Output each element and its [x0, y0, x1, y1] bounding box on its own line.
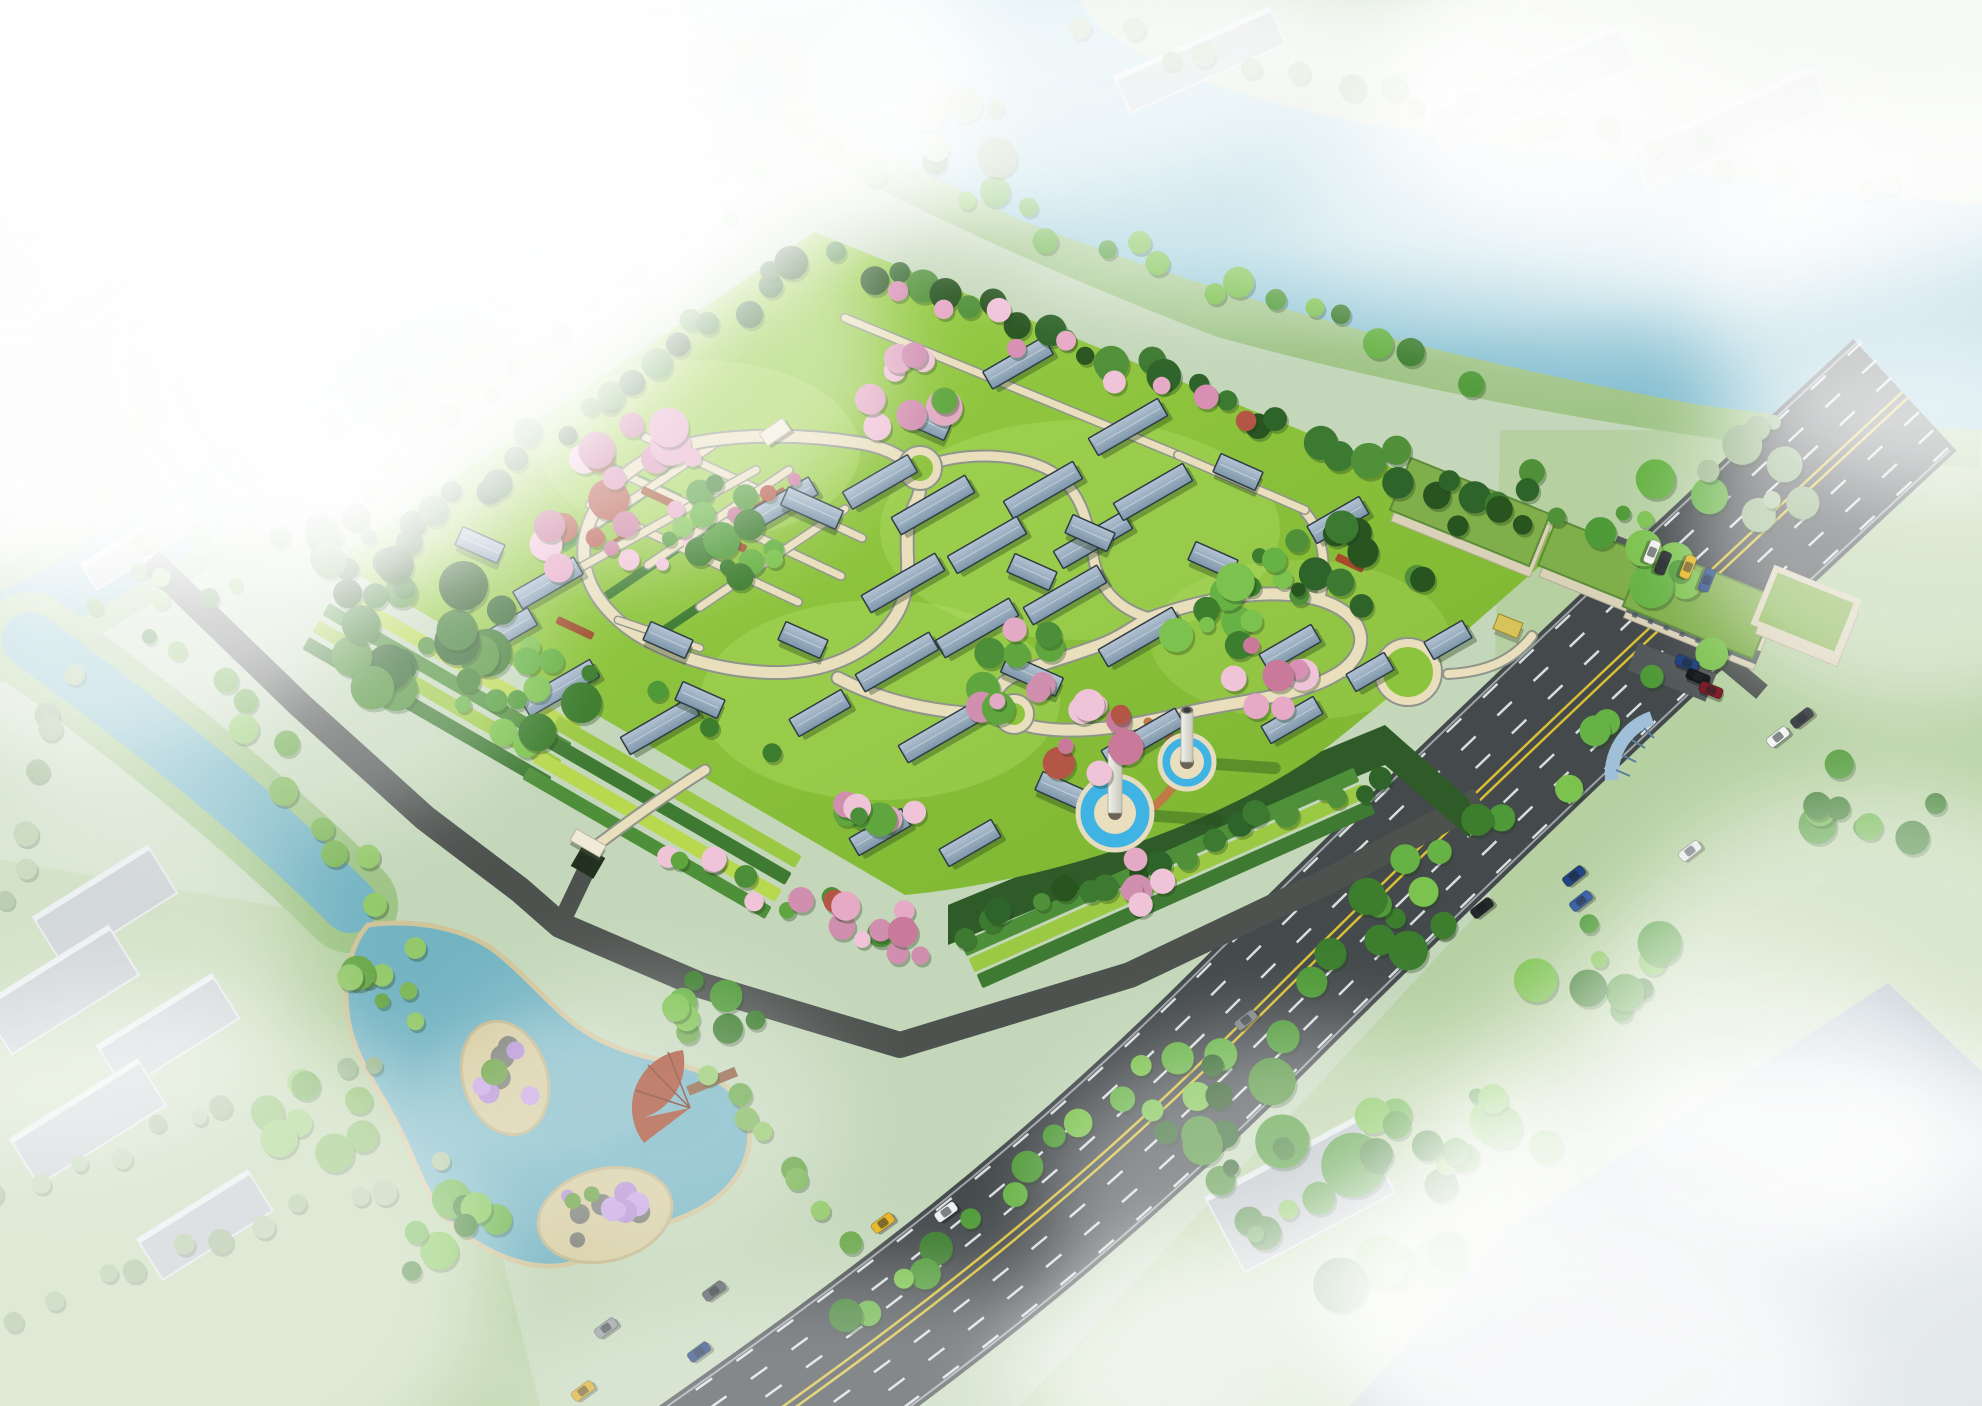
- tree-crown: [1825, 750, 1854, 779]
- tree-crown: [1285, 529, 1308, 552]
- tree-crown: [1153, 377, 1171, 395]
- tree-crown: [1350, 594, 1374, 618]
- tree-crown: [1516, 478, 1539, 501]
- fog-patch: [1280, 20, 1880, 340]
- tree-crown: [811, 1201, 831, 1221]
- tree-crown: [1580, 715, 1611, 746]
- tree-crown: [854, 931, 871, 948]
- tree-crown: [744, 892, 763, 911]
- tree-crown: [1363, 328, 1393, 358]
- tree-crown: [1388, 931, 1428, 971]
- tree-crown: [934, 300, 953, 319]
- tree-crown: [701, 847, 726, 872]
- tree-crown: [1103, 371, 1126, 394]
- tree-crown: [363, 893, 387, 917]
- tree-crown: [1262, 548, 1287, 573]
- tree-crown: [1410, 567, 1435, 592]
- tree-crown: [984, 897, 1011, 924]
- tree-crown: [734, 865, 757, 888]
- fog-patch: [440, 980, 840, 1260]
- tree-crown: [1265, 289, 1286, 310]
- tree-crown: [831, 891, 860, 920]
- tree-crown: [888, 917, 918, 947]
- tree-crown: [1007, 339, 1026, 358]
- tower-opening: [1183, 707, 1191, 712]
- tree-crown: [1324, 441, 1354, 471]
- tree-crown: [400, 982, 418, 1000]
- tree-crown: [1640, 665, 1663, 688]
- tree-crown: [1271, 696, 1295, 720]
- tree-crown: [337, 964, 363, 990]
- tree-crown: [1051, 875, 1077, 901]
- tree-crown: [1033, 893, 1051, 911]
- tree-crown: [1243, 637, 1260, 654]
- tree-crown: [974, 638, 1005, 669]
- tree-crown: [931, 387, 957, 413]
- tree-crown: [888, 281, 908, 301]
- tree-crown: [762, 743, 781, 762]
- aerial-rendering-park-masterplan: [0, 0, 1982, 1406]
- tree-crown: [671, 852, 689, 870]
- tree-crown: [1331, 304, 1351, 324]
- tree-crown: [1486, 496, 1513, 523]
- tree-crown: [1111, 705, 1131, 725]
- tree-crown: [1003, 617, 1027, 641]
- tree-crown: [1616, 506, 1631, 521]
- tree-crown: [1382, 436, 1411, 465]
- tree-crown: [1637, 511, 1654, 528]
- tower-cylinder: [1181, 710, 1193, 762]
- tree-crown: [1513, 515, 1533, 535]
- tree-crown: [1314, 938, 1346, 970]
- tree-crown: [989, 693, 1005, 709]
- tree-crown: [1221, 666, 1247, 692]
- tree-crown: [1004, 641, 1030, 667]
- tree-crown: [1382, 467, 1414, 499]
- tree-crown: [1108, 730, 1143, 765]
- tree-crown: [1203, 829, 1226, 852]
- tree-crown: [1585, 517, 1617, 549]
- tree-crown: [1306, 298, 1325, 317]
- tree-crown: [726, 563, 753, 590]
- tree-crown: [407, 1012, 425, 1030]
- tree-crown: [839, 1231, 862, 1254]
- tree-crown: [1199, 617, 1214, 632]
- tree-crown: [700, 718, 719, 737]
- tree-crown: [375, 993, 390, 1008]
- tree-crown: [896, 400, 927, 431]
- tree-crown: [1390, 844, 1420, 874]
- tree-crown: [1072, 689, 1104, 721]
- tree-crown: [1397, 338, 1425, 366]
- fog-patch: [1440, 940, 1960, 1300]
- tree-crown: [1461, 804, 1493, 836]
- tree-crown: [1263, 407, 1287, 431]
- tree-crown: [1430, 912, 1456, 938]
- tree-crown: [1325, 510, 1358, 543]
- tree-crown: [958, 295, 981, 318]
- tree-crown: [1056, 331, 1076, 351]
- tree-crown: [1548, 507, 1566, 525]
- tree-crown: [1216, 562, 1255, 601]
- scene-canvas: [0, 0, 1982, 1406]
- tree-crown: [1447, 515, 1468, 536]
- tree-crown: [1150, 869, 1175, 894]
- tree-crown: [1036, 622, 1062, 648]
- tree-crown: [1194, 385, 1219, 410]
- tree-crown: [1240, 610, 1262, 632]
- tree-crown: [903, 801, 926, 824]
- tree-crown: [955, 928, 976, 949]
- tree-crown: [1369, 767, 1392, 790]
- tree-crown: [911, 946, 929, 964]
- tree-crown: [1058, 738, 1074, 754]
- tree-crown: [1262, 660, 1294, 692]
- tree-crown: [1356, 785, 1374, 803]
- tree-crown: [581, 665, 597, 681]
- tree-crown: [1086, 760, 1112, 786]
- tree-crown: [902, 342, 928, 368]
- tree-crown: [1408, 877, 1438, 907]
- tree-crown: [321, 840, 348, 867]
- tree-crown: [1351, 443, 1387, 479]
- tree-crown: [1348, 878, 1385, 915]
- tree-crown: [850, 807, 867, 824]
- tree-crown: [1296, 967, 1327, 998]
- tree-crown: [1159, 618, 1193, 652]
- tree-crown: [1092, 874, 1119, 901]
- tree-crown: [1555, 775, 1583, 803]
- tree-crown: [960, 1208, 981, 1229]
- tree-crown: [1458, 371, 1484, 397]
- tree-crown: [1636, 459, 1676, 499]
- tree-crown: [987, 298, 1011, 322]
- tree-crown: [1243, 693, 1269, 719]
- tree-crown: [788, 887, 814, 913]
- tree-crown: [889, 262, 910, 283]
- tree-crown: [1124, 847, 1148, 871]
- tree-crown: [1128, 892, 1152, 916]
- tree-crown: [1242, 800, 1268, 826]
- tree-crown: [765, 550, 784, 569]
- tree-crown: [1327, 788, 1347, 808]
- tree-crown: [1176, 848, 1198, 870]
- tree-crown: [1326, 568, 1354, 596]
- tree-crown: [561, 682, 602, 723]
- tree-crown: [404, 937, 426, 959]
- tree-crown: [1011, 1151, 1043, 1183]
- tree-crown: [1427, 840, 1452, 865]
- tree-crown: [647, 681, 667, 701]
- tree-crown: [1003, 1182, 1028, 1207]
- tree-crown: [1273, 802, 1299, 828]
- tree-crown: [356, 844, 380, 868]
- tree-crown: [1026, 678, 1050, 702]
- tree-crown: [1695, 638, 1728, 671]
- tree-crown: [1236, 411, 1257, 432]
- tree-crown: [1579, 914, 1598, 933]
- tree-crown: [1076, 347, 1094, 365]
- tree-crown: [1439, 470, 1460, 491]
